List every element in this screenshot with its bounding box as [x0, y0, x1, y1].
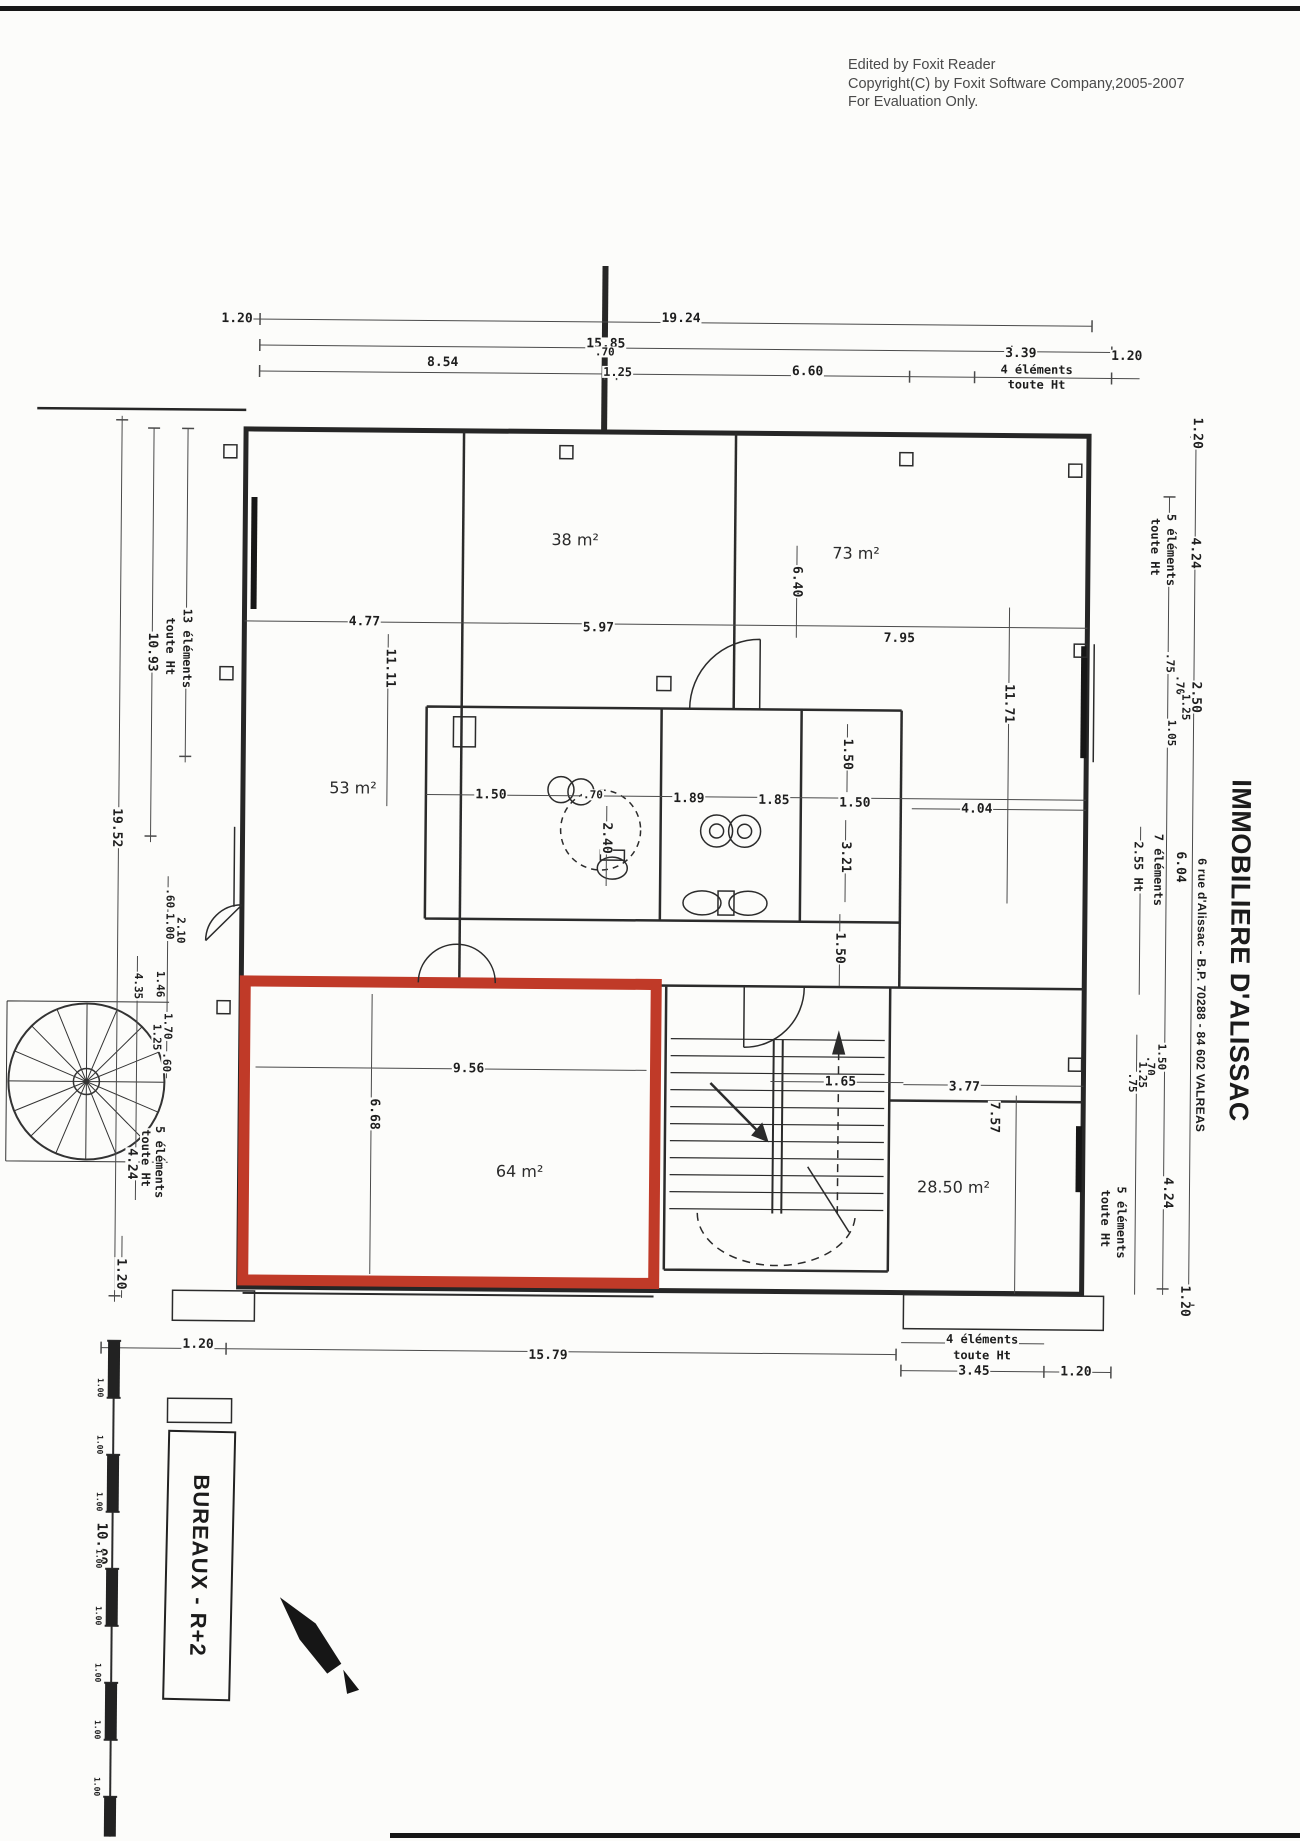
dimension-label: 4.77 — [348, 615, 381, 629]
agency-title: IMMOBILIERE D'ALISSAC — [1223, 779, 1257, 1122]
dimension-label: 1.50 — [841, 737, 855, 770]
dimension-label: 5 éléments — [1165, 513, 1178, 587]
scale-bar-label: 1.00 — [92, 1776, 100, 1797]
wc-icon — [683, 891, 721, 915]
dimension-label: 3.77 — [948, 1080, 981, 1094]
dimension-label: 6.68 — [367, 1097, 381, 1130]
dimension-label: 4 éléments — [945, 1333, 1019, 1346]
foxit-line-3: For Evaluation Only. — [848, 93, 1185, 112]
dimension-label: 1.89 — [672, 792, 705, 806]
dimension-label: 6.60 — [791, 365, 824, 379]
dimension-label: 1.70 — [162, 1012, 173, 1041]
dimension-label: 1.25 — [151, 1023, 162, 1052]
scale-bar-label: 1.00 — [93, 1719, 101, 1740]
dimension-label: 1.25 — [1180, 693, 1191, 722]
outer-walls — [30, 261, 1091, 1294]
dimension-label: 4.35 — [132, 972, 143, 1001]
dimension-label: 1.50 — [833, 931, 847, 964]
dimension-label: 7.95 — [883, 632, 916, 646]
room-area-label: 53 m² — [328, 778, 378, 797]
dimension-label: toute Ht — [1149, 517, 1162, 577]
dimension-label: 4 éléments — [999, 363, 1073, 376]
dimension-label: 15.79 — [527, 1349, 568, 1363]
room-area-label: 38 m² — [550, 530, 600, 549]
scale-bar-label: 1.00 — [96, 1377, 104, 1398]
plan-title: BUREAUX - R+2 — [184, 1474, 214, 1657]
dimension-label: 8.54 — [426, 356, 459, 370]
sanitary-fixtures — [452, 717, 769, 916]
foxit-line-1: Edited by Foxit Reader — [848, 56, 1185, 75]
dimension-label: .70 — [582, 789, 604, 800]
dimension-label: .70 — [594, 346, 616, 357]
dimension-label: 1.20 — [1059, 1365, 1092, 1379]
floor-plan: 1.2019.2415.858.54.701.256.603.394 éléme… — [0, 0, 1300, 1841]
interior-walls — [231, 429, 1097, 1300]
dimension-label: toute Ht — [1007, 378, 1067, 391]
dimension-label: 1.25 — [602, 366, 633, 379]
agency-address: 6 rue d'Alissac - B.P. 70288 - 84 602 VA… — [1193, 858, 1209, 1132]
room-64-walls — [243, 981, 657, 1284]
scale-bar — [103, 1341, 121, 1837]
dimension-label: toute Ht — [164, 616, 177, 676]
dimension-label: 7 éléments — [1152, 833, 1165, 907]
dimension-label: .75 — [1127, 1072, 1138, 1094]
dimension-label: 19.52 — [110, 807, 124, 848]
room-area-label: 28.50 m² — [916, 1177, 991, 1197]
dimension-label: 3.45 — [957, 1365, 990, 1379]
highlighted-room-outline[interactable] — [243, 981, 657, 1284]
scale-bar-label: 1.00 — [94, 1548, 102, 1569]
dimension-label: 4.04 — [960, 803, 993, 817]
dimension-label: 9.56 — [452, 1062, 485, 1076]
plan-title-box: BUREAUX - R+2 — [162, 1430, 236, 1701]
dimension-label: 3.21 — [839, 840, 853, 873]
dimension-label: 4.24 — [125, 1147, 139, 1180]
north-arrow-icon — [279, 1597, 360, 1694]
scale-bar-label: 1.00 — [95, 1491, 103, 1512]
room-area-label: 64 m² — [495, 1162, 545, 1181]
foxit-watermark: Edited by Foxit Reader Copyright(C) by F… — [848, 56, 1185, 112]
dimension-label: .60 — [161, 1051, 172, 1073]
dimension-label: 11.71 — [1002, 683, 1016, 724]
dimension-label: 13 éléments — [181, 608, 194, 690]
dimension-label: 1.65 — [824, 1075, 857, 1089]
dimension-label: 1.20 — [1190, 416, 1204, 449]
dimension-label: toute Ht — [1099, 1188, 1112, 1248]
dimension-label: toute Ht — [952, 1349, 1012, 1362]
dimension-label: 4.24 — [1161, 1176, 1175, 1209]
dimension-label: 5 éléments — [1115, 1185, 1128, 1259]
dimension-label: 3.39 — [1004, 347, 1037, 361]
dimension-label: 1.05 — [1166, 719, 1177, 748]
stairwell — [669, 1031, 885, 1267]
dimension-label: 5.97 — [582, 621, 615, 635]
dimension-label: 1.20 — [1178, 1284, 1192, 1317]
dimension-label: 2.40 — [600, 821, 614, 854]
dimension-label: 5 éléments — [153, 1125, 166, 1199]
foxit-line-2: Copyright(C) by Foxit Software Company,2… — [848, 75, 1185, 94]
scale-bar-label: 1.00 — [94, 1605, 102, 1626]
scale-bar-label: 1.00 — [95, 1434, 103, 1455]
dimension-label: 1.20 — [114, 1257, 128, 1290]
dimension-label: 6.04 — [1174, 850, 1188, 883]
dimension-label: .60 — [164, 887, 175, 909]
dimension-label: 1.50 — [1156, 1043, 1167, 1072]
floor-plan-sheet: Edited by Foxit Reader Copyright(C) by F… — [0, 0, 1300, 1841]
dimension-label: 1.85 — [757, 794, 790, 808]
dimension-label: 1.50 — [838, 796, 871, 810]
dimension-label: 4.24 — [1188, 536, 1202, 569]
dimension-label: 1.20 — [220, 312, 253, 326]
dimension-label: 1.50 — [474, 788, 507, 802]
stair-up-arrow — [833, 1032, 845, 1054]
dimension-label: 7.57 — [987, 1101, 1001, 1134]
dimension-label: .75 — [1164, 652, 1175, 674]
dimension-label: 10.93 — [145, 631, 159, 672]
dimension-label: 19.24 — [660, 312, 701, 326]
dimension-label: 1.46 — [155, 970, 166, 999]
dimension-label: 11.11 — [383, 648, 397, 689]
dimension-label: 1.20 — [181, 1338, 214, 1352]
scale-bar-label: 1.00 — [93, 1662, 101, 1683]
dimension-label: 6.40 — [790, 565, 804, 598]
dimension-label: toute Ht — [139, 1128, 152, 1188]
dimension-label: 2.55 Ht — [1132, 840, 1145, 893]
room-area-label: 73 m² — [831, 544, 881, 563]
dimension-label: 2.10 — [175, 916, 186, 945]
dimension-label: 1.20 — [1110, 350, 1143, 364]
